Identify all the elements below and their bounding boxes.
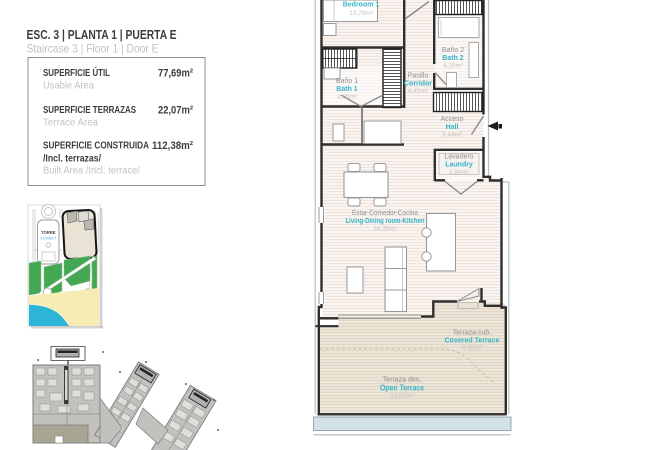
svg-text:/Incl. terrazas/: /Incl. terrazas/ <box>43 154 101 165</box>
svg-text:Lavadero: Lavadero <box>444 154 473 161</box>
svg-text:Hall: Hall <box>446 124 459 131</box>
svg-text:Terraza cub.: Terraza cub. <box>453 330 492 337</box>
svg-text:Usable Area: Usable Area <box>43 81 94 92</box>
svg-text:SUNSET: SUNSET <box>40 236 57 241</box>
svg-text:112,38m²: 112,38m² <box>152 140 193 152</box>
svg-text:Terrace Area: Terrace Area <box>43 118 98 129</box>
svg-text:Baño 1: Baño 1 <box>336 78 358 85</box>
svg-text:77,69m²: 77,69m² <box>158 68 193 80</box>
svg-text:1,94m²: 1,94m² <box>449 169 469 176</box>
svg-text:ESC. 3 | PLANTA 1 | PUERTA E: ESC. 3 | PLANTA 1 | PUERTA E <box>27 28 177 42</box>
svg-text:4,45m²: 4,45m² <box>408 88 428 95</box>
svg-text:13,70m²: 13,70m² <box>349 10 372 17</box>
svg-text:4,06m²: 4,06m² <box>337 94 357 101</box>
svg-text:SUPERFICIE ÚTIL: SUPERFICIE ÚTIL <box>43 66 110 79</box>
svg-text:Bedroom 1: Bedroom 1 <box>343 2 380 9</box>
svg-text:Baño 2: Baño 2 <box>442 47 464 54</box>
svg-text:22,07m²: 22,07m² <box>158 105 193 117</box>
svg-text:Open Terrace: Open Terrace <box>380 384 424 393</box>
svg-text:Built Area /Incl. terrace/: Built Area /Incl. terrace/ <box>43 166 140 177</box>
svg-text:SUPERFICIE TERRAZAS: SUPERFICIE TERRAZAS <box>43 105 136 116</box>
svg-text:Living-Dining room-Kitchen: Living-Dining room-Kitchen <box>346 218 425 225</box>
svg-text:4,20m²: 4,20m² <box>443 63 463 70</box>
svg-text:Corridor: Corridor <box>404 81 432 88</box>
svg-text:TORRE: TORRE <box>41 230 56 235</box>
svg-text:Estar-Comedor-Cocina: Estar-Comedor-Cocina <box>352 210 418 217</box>
svg-text:Covered Terrace: Covered Terrace <box>445 338 500 345</box>
svg-text:34,35m²: 34,35m² <box>373 226 396 233</box>
svg-text:Laundry: Laundry <box>445 162 473 169</box>
svg-text:8,55m²: 8,55m² <box>462 345 482 352</box>
svg-text:Terraza des.: Terraza des. <box>383 377 422 384</box>
svg-text:SUPERFICIE CONSTRUIDA: SUPERFICIE CONSTRUIDA <box>43 141 149 152</box>
svg-text:Pasillo: Pasillo <box>408 73 429 80</box>
svg-text:Staircase 3 | Floor 1 | Door E: Staircase 3 | Floor 1 | Door E <box>27 42 159 56</box>
svg-text:3,44m²: 3,44m² <box>442 132 462 139</box>
svg-text:Acceso: Acceso <box>441 116 464 123</box>
svg-text:Bath 2: Bath 2 <box>442 55 464 62</box>
svg-text:13,52m²: 13,52m² <box>390 393 413 400</box>
svg-text:Bath 1: Bath 1 <box>336 86 358 93</box>
